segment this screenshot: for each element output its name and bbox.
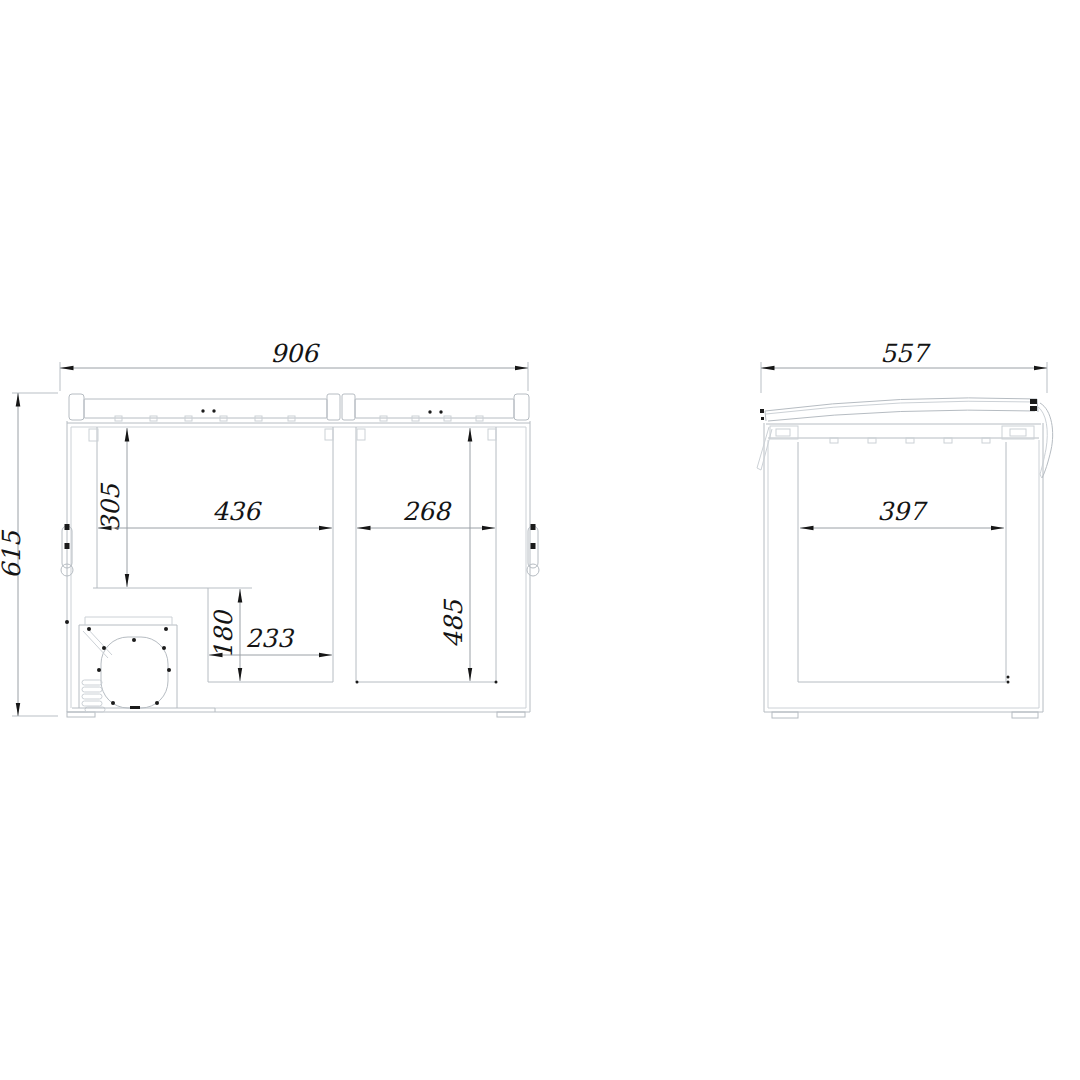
dim-label-485: 485 — [439, 598, 468, 648]
condenser-coil — [82, 701, 102, 706]
hinge-pin — [1030, 406, 1037, 411]
compressor-pipe — [83, 631, 108, 658]
dim-label-268: 268 — [402, 497, 452, 526]
mount-dot — [97, 668, 101, 672]
mount-dot — [164, 627, 168, 631]
mount-dot — [65, 620, 69, 624]
mount-dot — [162, 646, 166, 650]
condenser-coil — [82, 680, 102, 685]
dim-label-233: 233 — [245, 624, 295, 653]
mount-dot — [155, 701, 159, 705]
mount-pad — [130, 706, 140, 709]
hinge-pin — [1030, 399, 1037, 404]
mount-dot — [87, 627, 91, 631]
compressor-pipe — [87, 628, 112, 655]
condenser-coil — [82, 687, 102, 692]
front-left-lid — [69, 394, 340, 421]
front-divider — [333, 427, 356, 682]
dim-overall-depth: 557 — [761, 339, 1047, 393]
dim-left-compartment-width: 436 — [98, 497, 332, 528]
side-cabinet-outline — [764, 423, 1043, 718]
lid-screw-dot — [428, 410, 431, 413]
condenser-coil — [82, 694, 102, 699]
handle-mount-dot — [531, 543, 536, 549]
mount-dot — [132, 638, 136, 642]
dim-left-compartment-depth: 305 — [96, 428, 127, 587]
dim-right-compartment-width: 268 — [357, 497, 495, 528]
technical-drawing: 906 615 305 436 268 180 233 — [0, 0, 1080, 1080]
latch-dot — [761, 417, 764, 420]
dim-overall-width: 906 — [60, 339, 528, 391]
mount-dot — [102, 646, 106, 650]
front-view: 906 615 305 436 268 180 233 — [0, 339, 539, 717]
mount-dot — [111, 701, 115, 705]
side-view: 557 397 — [757, 339, 1053, 718]
dim-label-906: 906 — [270, 339, 320, 368]
front-cabinet-outline — [67, 421, 530, 717]
compressor-body — [101, 637, 168, 708]
front-right-lid — [342, 394, 529, 421]
dim-label-436: 436 — [212, 497, 262, 526]
dim-label-557: 557 — [880, 339, 931, 368]
foot-right — [497, 712, 525, 717]
lid-screw-dot — [212, 409, 215, 412]
foot-left — [772, 712, 798, 718]
handle-mount-dot — [65, 524, 70, 530]
dim-inner-depth: 397 — [800, 497, 1004, 528]
handle-right — [527, 524, 539, 576]
dim-overall-height: 615 — [0, 393, 58, 716]
side-lid — [765, 398, 1038, 421]
drawing-canvas: 906 615 305 436 268 180 233 — [0, 0, 1080, 1080]
foot-left — [67, 712, 95, 717]
front-right-compartment — [356, 427, 496, 682]
lid-screw-dot — [201, 409, 204, 412]
side-rim — [766, 424, 1041, 443]
dim-label-180: 180 — [209, 609, 238, 659]
lid-hook — [325, 429, 333, 440]
dim-label-615: 615 — [0, 529, 26, 579]
side-compartment — [798, 442, 1010, 684]
compressor-unit — [65, 617, 215, 712]
lid-hook — [488, 429, 496, 440]
dim-label-305: 305 — [96, 482, 125, 532]
handle-mount-dot — [531, 524, 536, 530]
latch-dot — [760, 409, 764, 413]
lid-screw-dot — [439, 410, 442, 413]
dim-right-compartment-depth: 485 — [356, 428, 498, 684]
mount-dot — [167, 668, 171, 672]
handle-mount-dot — [65, 543, 70, 549]
lid-hook — [357, 429, 365, 440]
dim-label-397: 397 — [877, 497, 928, 526]
foot-right — [1012, 712, 1038, 718]
